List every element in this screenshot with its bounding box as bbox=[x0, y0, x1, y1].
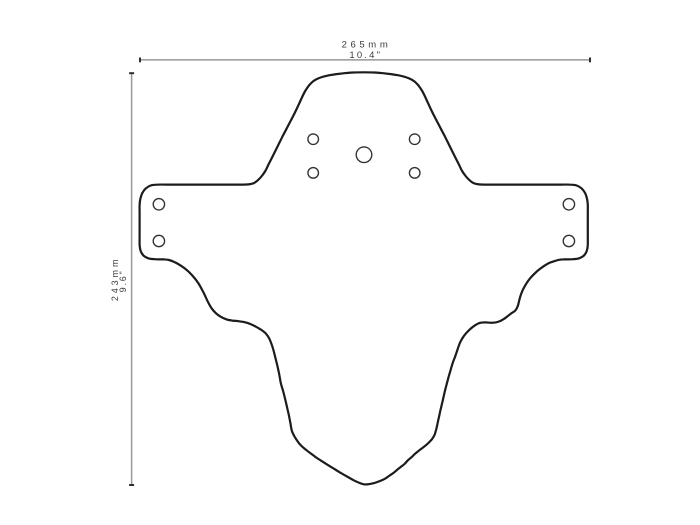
svg-text:10.4": 10.4" bbox=[349, 50, 382, 61]
svg-text:9.6": 9.6" bbox=[118, 269, 128, 292]
